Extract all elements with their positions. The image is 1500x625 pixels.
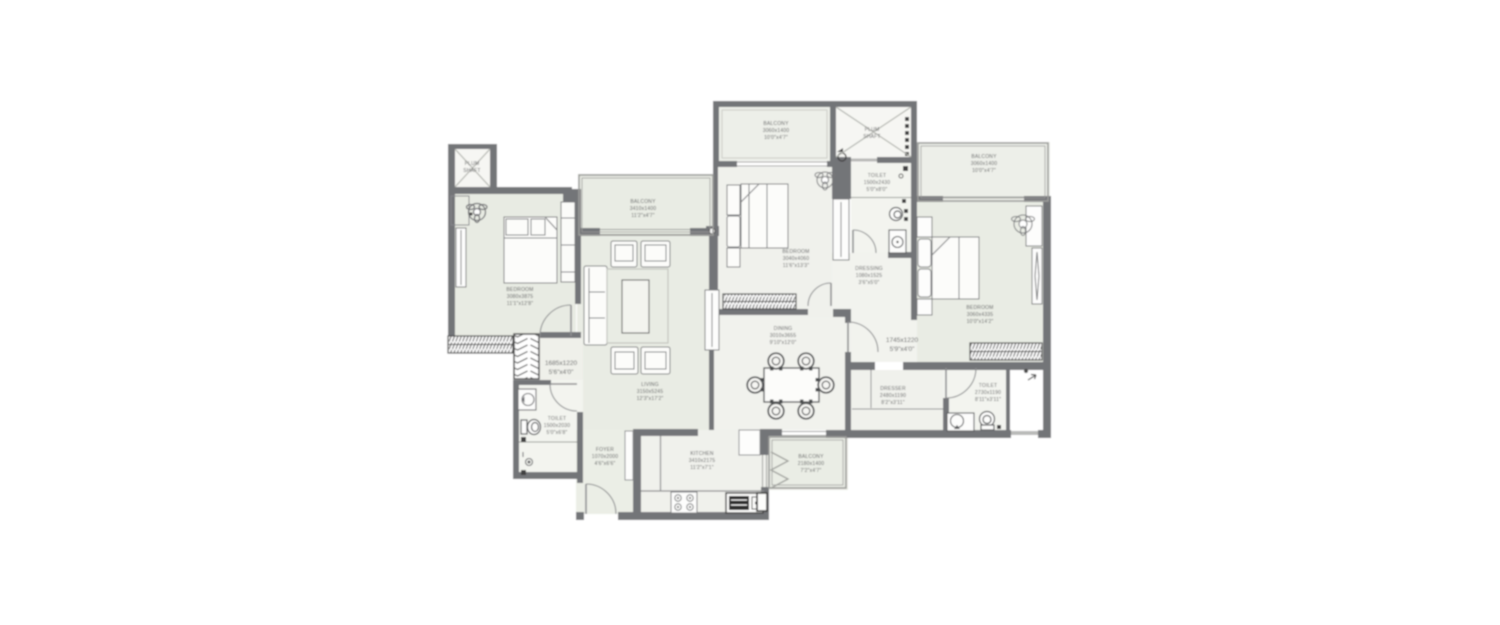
svg-text:11'1"x12'8": 11'1"x12'8" xyxy=(507,301,533,307)
svg-text:TOILET: TOILET xyxy=(868,173,887,179)
svg-text:3410x2175: 3410x2175 xyxy=(689,458,716,464)
svg-text:3010x3655: 3010x3655 xyxy=(770,333,797,339)
svg-text:DRESSING: DRESSING xyxy=(855,266,883,272)
svg-text:3080x3875: 3080x3875 xyxy=(507,294,534,300)
svg-text:TOILET: TOILET xyxy=(548,416,567,422)
svg-text:5'0"x8'0": 5'0"x8'0" xyxy=(867,187,888,193)
svg-text:1080x1525: 1080x1525 xyxy=(856,273,883,279)
svg-text:1070x2000: 1070x2000 xyxy=(592,454,619,460)
svg-text:3410x1400: 3410x1400 xyxy=(630,206,657,212)
svg-text:10'0"x14'2": 10'0"x14'2" xyxy=(967,319,994,325)
svg-text:9'10"x12'0": 9'10"x12'0" xyxy=(770,340,797,346)
svg-text:4'6"x6'6": 4'6"x6'6" xyxy=(595,461,616,467)
svg-text:5'9"x4'0": 5'9"x4'0" xyxy=(890,346,915,353)
svg-text:3060x1400: 3060x1400 xyxy=(763,128,790,134)
svg-text:BALCONY: BALCONY xyxy=(798,454,824,460)
svg-text:DINING: DINING xyxy=(774,326,793,332)
svg-text:3'6"x5'0": 3'6"x5'0" xyxy=(859,280,880,286)
svg-text:BALCONY: BALCONY xyxy=(763,121,789,127)
svg-text:SHAFT: SHAFT xyxy=(463,168,480,174)
svg-text:TOILET: TOILET xyxy=(979,383,998,389)
svg-text:10'0"x4'7": 10'0"x4'7" xyxy=(972,168,996,174)
svg-text:LIVING: LIVING xyxy=(641,382,659,388)
svg-text:8'11"x3'11": 8'11"x3'11" xyxy=(975,397,1001,403)
svg-text:5'0"x6'8": 5'0"x6'8" xyxy=(547,430,568,436)
svg-text:11'2"x7'1": 11'2"x7'1" xyxy=(690,465,714,471)
svg-text:2480x1190: 2480x1190 xyxy=(880,393,906,399)
svg-text:12'3"x17'2": 12'3"x17'2" xyxy=(637,396,664,402)
svg-text:SHAFT: SHAFT xyxy=(863,134,880,140)
svg-text:PLUM: PLUM xyxy=(465,161,480,167)
svg-text:10'0"x4'7": 10'0"x4'7" xyxy=(764,135,788,141)
svg-text:DRESSER: DRESSER xyxy=(880,386,906,392)
svg-text:11'6"x13'3": 11'6"x13'3" xyxy=(783,263,809,269)
svg-text:1685x1220: 1685x1220 xyxy=(545,360,578,367)
svg-text:11'2"x4'7": 11'2"x4'7" xyxy=(631,213,655,219)
svg-text:FOYER: FOYER xyxy=(596,447,614,453)
svg-text:BALCONY: BALCONY xyxy=(630,199,656,205)
svg-text:KITCHEN: KITCHEN xyxy=(690,451,714,457)
svg-text:BEDROOM: BEDROOM xyxy=(506,287,533,293)
svg-text:PLUM: PLUM xyxy=(865,127,880,133)
svg-text:1500x2430: 1500x2430 xyxy=(864,180,891,186)
svg-text:5'6"x4'0": 5'6"x4'0" xyxy=(549,369,574,376)
svg-text:1500x2030: 1500x2030 xyxy=(544,423,571,429)
svg-text:8'2"x3'11": 8'2"x3'11" xyxy=(881,400,905,406)
svg-text:3060x4335: 3060x4335 xyxy=(967,312,994,318)
svg-text:3150x5245: 3150x5245 xyxy=(637,389,664,395)
svg-text:7'2"x4'7": 7'2"x4'7" xyxy=(801,468,822,474)
svg-text:1745x1220: 1745x1220 xyxy=(886,337,919,344)
svg-text:2730x1190: 2730x1190 xyxy=(975,390,1001,396)
svg-text:BALCONY: BALCONY xyxy=(971,154,997,160)
svg-text:BEDROOM: BEDROOM xyxy=(966,305,993,311)
svg-text:3040x4060: 3040x4060 xyxy=(783,256,810,262)
svg-text:BEDROOM: BEDROOM xyxy=(782,249,809,255)
svg-text:2180x1400: 2180x1400 xyxy=(798,461,825,467)
svg-text:3060x1400: 3060x1400 xyxy=(971,161,998,167)
